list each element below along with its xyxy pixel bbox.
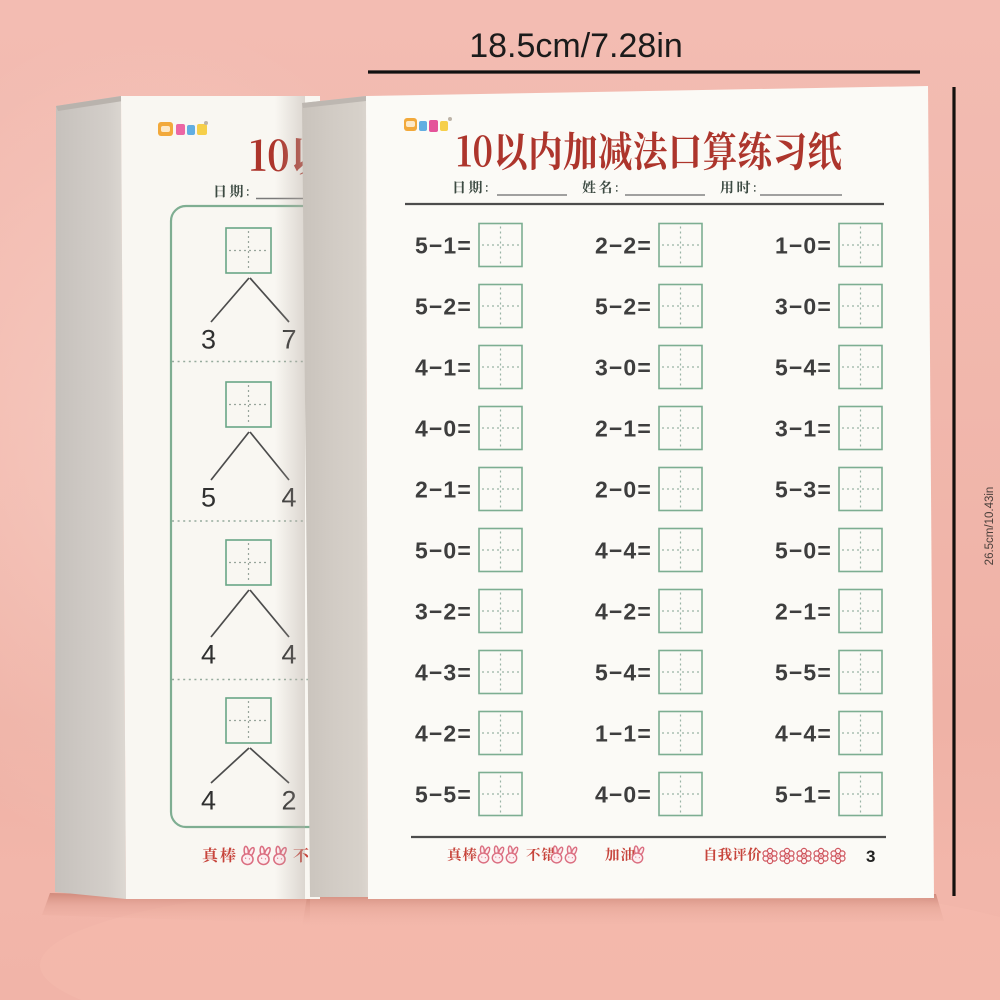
svg-text:3−0=: 3−0= [775,294,832,320]
svg-text:4−3=: 4−3= [415,660,472,686]
svg-text:5−2=: 5−2= [595,294,652,320]
svg-text:4−2=: 4−2= [595,599,652,625]
svg-text:5: 5 [201,483,216,513]
svg-text:5−2=: 5−2= [415,294,472,320]
svg-text:1−1=: 1−1= [595,721,652,747]
svg-text:18.5cm/7.28in: 18.5cm/7.28in [469,27,683,65]
svg-text:4−1=: 4−1= [415,355,472,381]
svg-text:5−4=: 5−4= [595,660,652,686]
svg-text:4−0=: 4−0= [415,416,472,442]
svg-text:5−0=: 5−0= [775,538,832,564]
svg-text:5−1=: 5−1= [775,782,832,808]
svg-text:5−5=: 5−5= [415,782,472,808]
svg-text:2−1=: 2−1= [775,599,832,625]
svg-text:3: 3 [866,847,875,866]
svg-text:4−2=: 4−2= [415,721,472,747]
svg-text:2−2=: 2−2= [595,233,652,259]
svg-text:4−4=: 4−4= [595,538,652,564]
svg-text:1−0=: 1−0= [775,233,832,259]
svg-text:4−0=: 4−0= [595,782,652,808]
svg-text:26.5cm/10.43in: 26.5cm/10.43in [984,487,996,566]
svg-text:4: 4 [201,786,216,816]
svg-text:4: 4 [201,640,216,670]
svg-text:2−1=: 2−1= [415,477,472,503]
svg-text:5−4=: 5−4= [775,355,832,381]
svg-text:4−4=: 4−4= [775,721,832,747]
svg-text:2−1=: 2−1= [595,416,652,442]
svg-text:3−2=: 3−2= [415,599,472,625]
svg-text:5−0=: 5−0= [415,538,472,564]
svg-text:5−3=: 5−3= [775,477,832,503]
svg-text:3−0=: 3−0= [595,355,652,381]
svg-text:2−0=: 2−0= [595,477,652,503]
svg-text:5−5=: 5−5= [775,660,832,686]
svg-text:3−1=: 3−1= [775,416,832,442]
svg-text:3: 3 [201,325,216,355]
svg-text:5−1=: 5−1= [415,233,472,259]
